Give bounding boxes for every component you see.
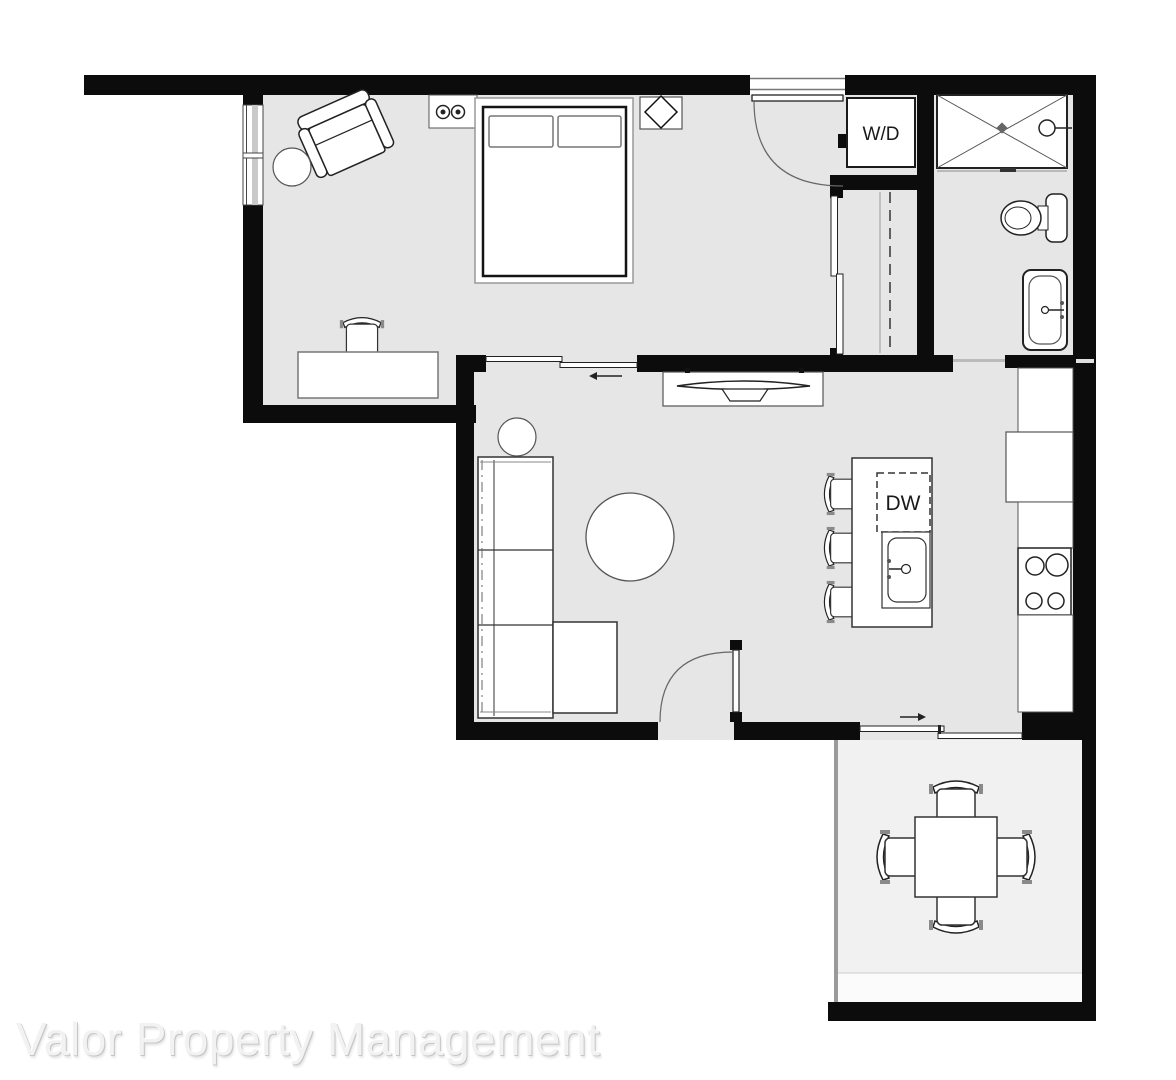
- patio-table: [915, 817, 997, 897]
- patio-right-wall: [1082, 740, 1096, 1002]
- burner: [1026, 557, 1044, 575]
- tv-console: [663, 368, 823, 406]
- tv-stand: [722, 389, 768, 401]
- refrigerator: [1006, 432, 1073, 502]
- patio-step: [838, 973, 1082, 1002]
- kitchen-counter: [1018, 502, 1073, 548]
- divider-wall-right: [637, 355, 953, 372]
- dishwasher-label: DW: [886, 492, 921, 515]
- outlet-symbols: [429, 95, 477, 128]
- coffee-table: [586, 493, 674, 581]
- washer-dryer-label: W/D: [863, 124, 900, 145]
- window: [243, 105, 263, 205]
- living-bottom-wall-right: [734, 722, 860, 740]
- closet-door-panel: [831, 196, 838, 276]
- kitchen-counter: [1018, 368, 1073, 432]
- bed: [475, 98, 633, 283]
- bath-south-wall: [1005, 355, 1075, 368]
- door-leaf: [733, 650, 739, 712]
- kitchen-island: DW: [852, 458, 932, 627]
- floor-plan-svg: W/D: [0, 0, 1176, 1080]
- sink-faucet: [902, 565, 911, 574]
- nightstand-lamp: [640, 96, 682, 129]
- right-wall: [1073, 95, 1096, 740]
- shower-valve: [1039, 120, 1055, 136]
- shower: [937, 95, 1072, 172]
- patio-edge-line: [834, 740, 838, 1002]
- burner: [1046, 554, 1068, 576]
- closet-door-panel: [837, 274, 844, 354]
- small-round-table: [498, 418, 536, 456]
- pillow: [489, 116, 553, 147]
- door-leaf: [752, 95, 843, 101]
- burner: [1026, 593, 1042, 609]
- washer-dryer: W/D: [847, 98, 915, 167]
- kitchen-corner-wall: [1022, 712, 1096, 740]
- floor-plan: W/D: [0, 0, 1176, 1080]
- bedroom-bottom-wall: [243, 405, 476, 423]
- stove: [1018, 548, 1071, 615]
- round-side-table: [273, 148, 311, 186]
- pillow: [558, 116, 621, 147]
- left-wall: [243, 203, 263, 423]
- closet-bath-wall: [917, 95, 934, 355]
- closet-top-wall: [830, 175, 932, 190]
- vanity-sink: [1023, 270, 1067, 350]
- top-wall: [84, 75, 1096, 95]
- watermark: Valor Property Management: [16, 1012, 600, 1066]
- island-sink: [882, 532, 930, 608]
- sink-faucet: [1042, 307, 1049, 314]
- kitchen-counter: [1018, 615, 1073, 712]
- patio-bottom-wall: [828, 1002, 1096, 1021]
- sofa-chaise: [553, 622, 617, 713]
- desk: [298, 352, 438, 398]
- wall-tick: [1076, 359, 1094, 363]
- living-bottom-wall-left: [456, 722, 658, 740]
- living-left-wall: [456, 357, 474, 740]
- divider-wall-left: [456, 355, 486, 372]
- bath-doorway-threshold: [953, 359, 1005, 362]
- toilet-tank: [1046, 194, 1067, 242]
- burner: [1048, 593, 1064, 609]
